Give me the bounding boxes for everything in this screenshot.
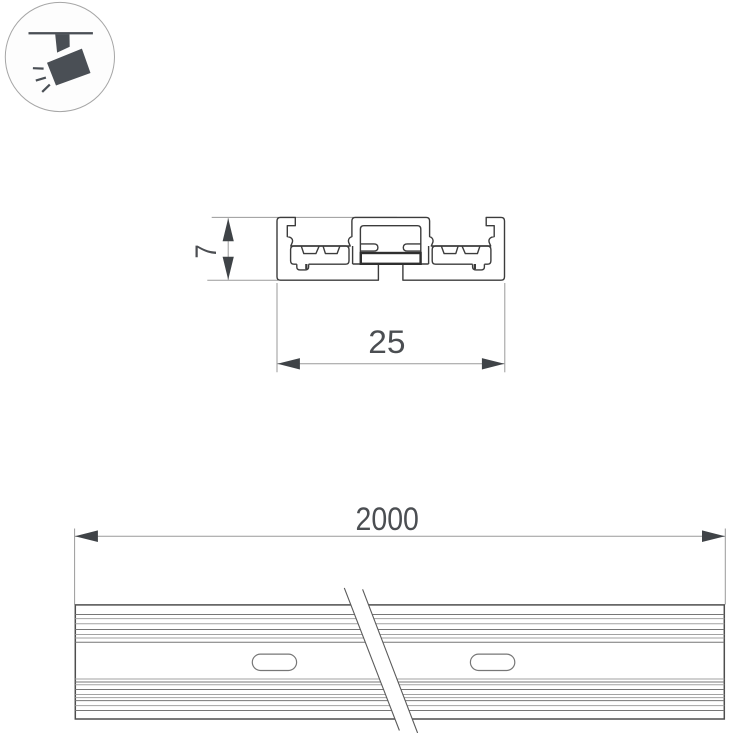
svg-text:25: 25 bbox=[368, 323, 405, 359]
svg-text:7: 7 bbox=[189, 244, 222, 258]
svg-text:2000: 2000 bbox=[356, 503, 419, 538]
